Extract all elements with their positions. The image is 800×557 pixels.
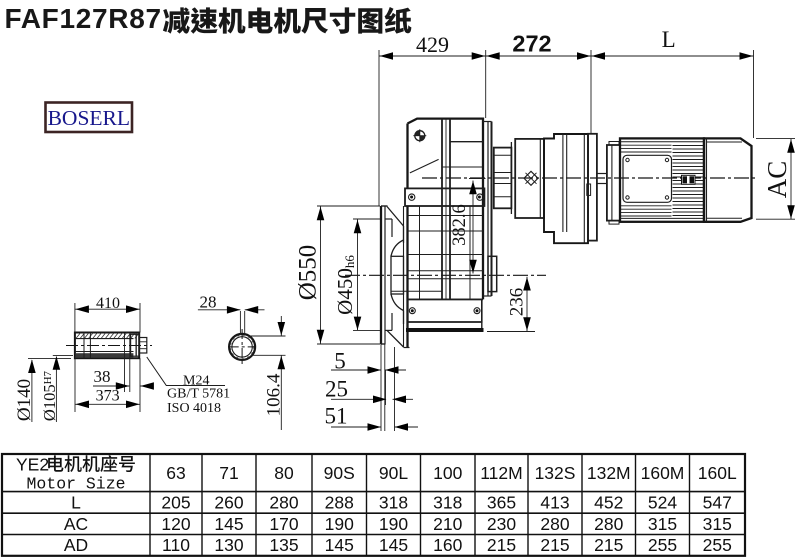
svg-text:315: 315 — [648, 514, 677, 534]
svg-text:160: 160 — [433, 535, 462, 555]
svg-text:160L: 160L — [698, 463, 737, 483]
svg-text:106.4: 106.4 — [264, 373, 285, 416]
svg-text:280: 280 — [594, 514, 623, 534]
svg-text:AD: AD — [64, 535, 88, 555]
svg-text:YE2: YE2 — [16, 455, 49, 475]
svg-text:315: 315 — [703, 514, 732, 534]
svg-text:Ø140: Ø140 — [14, 379, 35, 421]
svg-text:288: 288 — [325, 493, 354, 513]
svg-text:90S: 90S — [324, 463, 355, 483]
svg-text:L: L — [71, 493, 81, 513]
svg-text:100: 100 — [433, 463, 462, 483]
svg-text:272: 272 — [512, 31, 551, 57]
svg-text:38: 38 — [94, 367, 111, 386]
svg-text:GB/T 5781: GB/T 5781 — [167, 387, 230, 402]
svg-text:190: 190 — [325, 514, 354, 534]
svg-text:215: 215 — [594, 535, 623, 555]
svg-text:135: 135 — [269, 535, 298, 555]
svg-text:FAF127R87: FAF127R87 — [5, 3, 162, 34]
svg-text:L: L — [662, 27, 676, 52]
svg-text:382.6: 382.6 — [450, 204, 470, 246]
svg-text:215: 215 — [540, 535, 569, 555]
svg-text:452: 452 — [594, 493, 623, 513]
svg-text:28: 28 — [200, 292, 217, 311]
svg-text:373: 373 — [96, 388, 120, 405]
svg-text:132M: 132M — [587, 463, 631, 483]
svg-text:ISO 4018: ISO 4018 — [167, 401, 221, 416]
svg-text:Motor Size: Motor Size — [26, 475, 125, 494]
svg-text:210: 210 — [433, 514, 462, 534]
svg-text:132S: 132S — [535, 463, 576, 483]
svg-text:5: 5 — [334, 349, 346, 374]
svg-text:260: 260 — [214, 493, 243, 513]
svg-text:145: 145 — [214, 514, 243, 534]
svg-text:BOSERL: BOSERL — [48, 106, 130, 130]
svg-text:429: 429 — [416, 32, 449, 57]
svg-text:80: 80 — [274, 463, 294, 483]
svg-text:160M: 160M — [641, 463, 685, 483]
svg-text:110: 110 — [162, 535, 190, 555]
svg-text:25: 25 — [325, 377, 348, 402]
svg-text:71: 71 — [219, 463, 238, 483]
svg-text:145: 145 — [325, 535, 354, 555]
svg-text:413: 413 — [540, 493, 569, 513]
svg-text:Ø550: Ø550 — [295, 245, 322, 301]
svg-text:524: 524 — [648, 493, 677, 513]
svg-text:90L: 90L — [379, 463, 408, 483]
svg-text:51: 51 — [325, 404, 348, 429]
svg-text:190: 190 — [379, 514, 408, 534]
svg-text:280: 280 — [540, 514, 569, 534]
svg-text:145: 145 — [379, 535, 408, 555]
svg-text:215: 215 — [487, 535, 516, 555]
svg-text:AC: AC — [64, 514, 88, 534]
svg-text:280: 280 — [269, 493, 298, 513]
svg-text:365: 365 — [487, 493, 516, 513]
svg-text:130: 130 — [214, 535, 243, 555]
svg-text:236: 236 — [507, 288, 528, 317]
svg-text:410: 410 — [96, 295, 120, 312]
svg-text:318: 318 — [379, 493, 408, 513]
svg-text:255: 255 — [703, 535, 732, 555]
svg-text:230: 230 — [487, 514, 516, 534]
svg-text:120: 120 — [161, 514, 190, 534]
svg-text:318: 318 — [433, 493, 462, 513]
svg-text:AC: AC — [762, 161, 792, 199]
svg-text:63: 63 — [166, 463, 185, 483]
svg-text:170: 170 — [269, 514, 298, 534]
svg-text:255: 255 — [648, 535, 677, 555]
svg-text:205: 205 — [161, 493, 190, 513]
svg-text:547: 547 — [703, 493, 732, 513]
svg-text:112M: 112M — [480, 463, 522, 483]
